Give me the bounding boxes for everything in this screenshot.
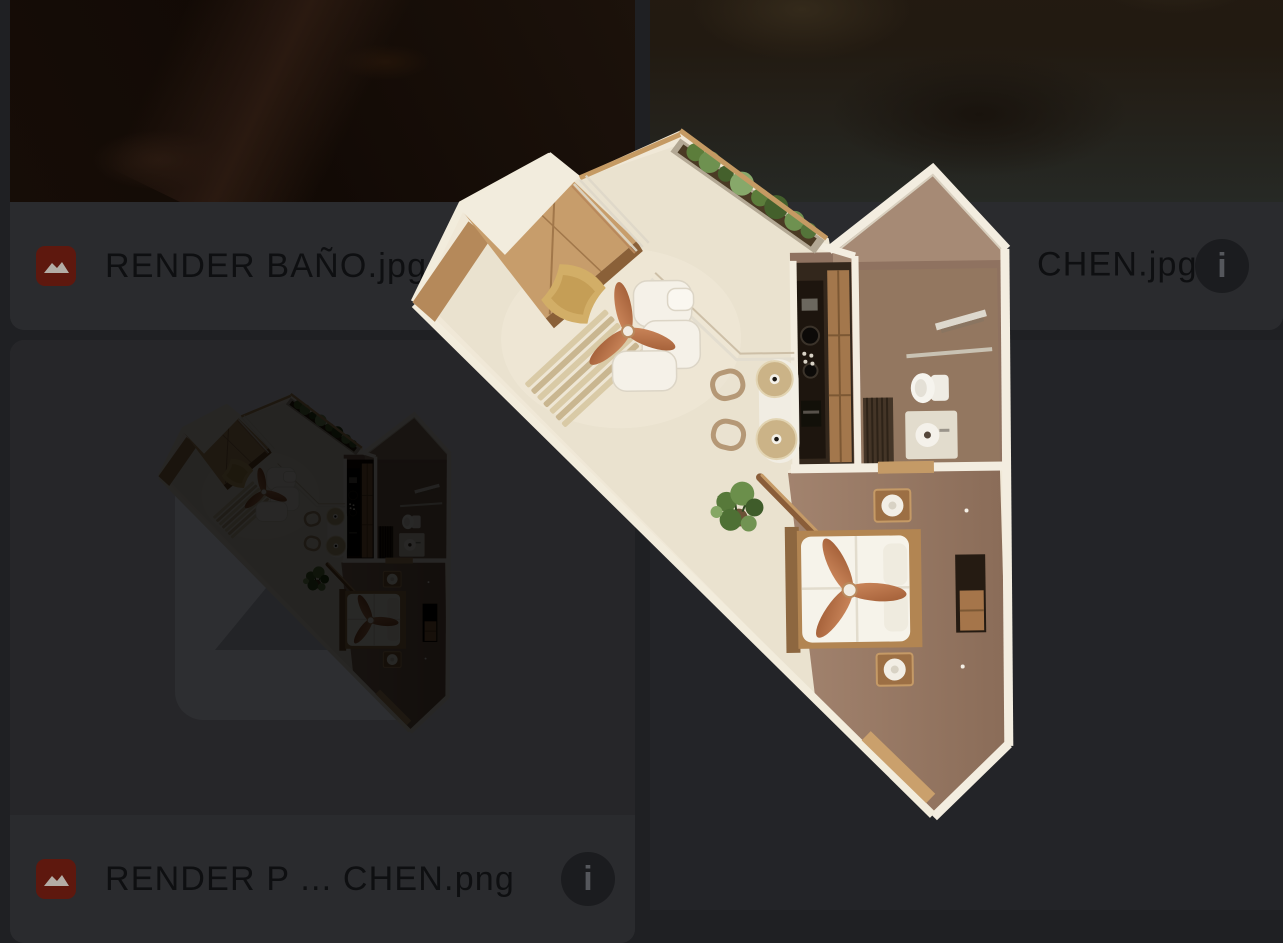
file-caption: RENDER P ... CHEN.png i bbox=[10, 815, 635, 943]
info-icon: i bbox=[583, 860, 592, 899]
image-file-icon bbox=[36, 859, 76, 899]
info-button[interactable]: i bbox=[561, 852, 615, 906]
drag-preview-floor-plan[interactable] bbox=[403, 118, 1025, 832]
file-name-visible-fragment: CHEN.jpg bbox=[1037, 246, 1198, 285]
file-name: RENDER P ... CHEN.png bbox=[105, 860, 515, 899]
file-name: RENDER BAÑO.jpg bbox=[105, 247, 427, 286]
image-file-icon bbox=[36, 246, 76, 286]
info-button[interactable]: i bbox=[1195, 239, 1249, 293]
info-icon: i bbox=[1217, 247, 1226, 286]
